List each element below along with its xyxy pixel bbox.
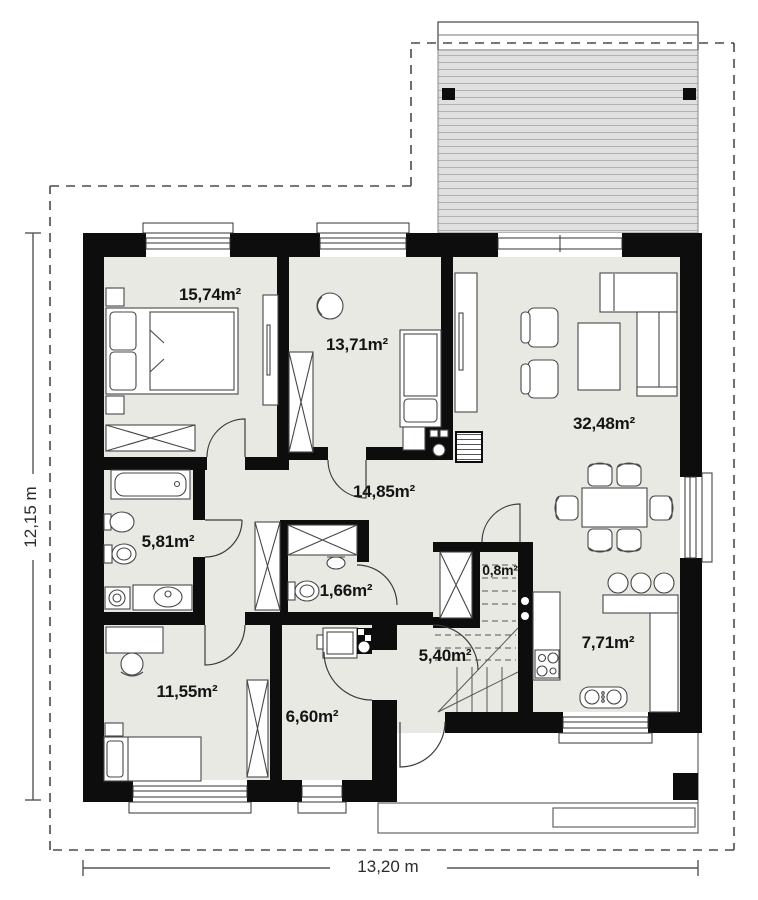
floor-plan: 15,74m² 13,71m² 32,48m² 14,85m² 5,81m² 1… [0, 0, 758, 900]
area-label-kitchen: 7,71m² [582, 633, 635, 653]
nightstand [105, 723, 123, 736]
tv-cabinet [455, 273, 477, 412]
terrace-post [683, 88, 696, 100]
radiator [456, 432, 482, 462]
toilet [288, 581, 319, 601]
bathtub [111, 470, 190, 499]
area-label-utility: 6,60m² [286, 707, 339, 727]
coffee-table [578, 323, 620, 390]
area-label-hallway: 14,85m² [353, 482, 415, 502]
dining-chair [617, 463, 641, 486]
single-bed [400, 330, 441, 427]
wardrobe-x [255, 522, 280, 610]
dining-chair [617, 529, 641, 552]
wardrobe-x [289, 352, 313, 452]
bidet [104, 512, 134, 532]
window-bedroom-large [143, 223, 233, 257]
stove [535, 650, 559, 678]
kitchen-sink [580, 687, 627, 708]
porch [378, 733, 698, 833]
armchair [521, 360, 558, 398]
dining-chair [588, 463, 612, 486]
dining-table [582, 488, 647, 527]
armchair [521, 308, 558, 347]
area-label-room-middle: 13,71m² [326, 335, 388, 355]
wardrobe-x [440, 552, 472, 618]
bar-stool [631, 573, 651, 593]
desk [106, 627, 163, 653]
window-living-right [680, 473, 712, 562]
terrace [438, 22, 698, 233]
dining-chair [555, 496, 578, 520]
cabinet [403, 427, 425, 450]
window-bedroom-small [129, 780, 251, 813]
desk-chair [121, 653, 143, 676]
area-label-wc: 1,66m² [320, 581, 373, 601]
washer-dryer [317, 628, 357, 658]
bar-counter [603, 595, 678, 613]
area-label-living-room: 32,48m² [573, 414, 635, 434]
door-pivot-dot [521, 612, 529, 620]
kitchen-counter [650, 613, 678, 712]
door-pivot-dot [521, 597, 529, 605]
window-room-middle [317, 223, 409, 257]
corner-basin [327, 557, 345, 569]
dining-chair [650, 496, 673, 520]
nightstand [106, 396, 124, 414]
dimension-height-label: 12,15 m [21, 486, 41, 547]
bar-stool [654, 573, 674, 593]
washbasin [133, 585, 192, 610]
terrace-post [442, 88, 455, 100]
area-label-bedroom-small: 11,55m² [157, 682, 218, 702]
dresser [106, 425, 195, 451]
wardrobe-slim [263, 295, 278, 405]
single-bed [104, 737, 201, 781]
wardrobe-x [247, 680, 268, 777]
area-label-closet: 0,8m² [482, 562, 518, 578]
washing-machine [105, 587, 130, 609]
armchair-round [317, 293, 343, 319]
dining-chair [588, 529, 612, 552]
bar-stool [608, 573, 628, 593]
floor-plan-drawing [0, 0, 758, 900]
wardrobe-x [288, 525, 357, 555]
boiler-unit [357, 628, 372, 654]
toilet [104, 544, 136, 564]
porch-pillar [673, 773, 698, 800]
double-bed [106, 308, 238, 394]
area-label-bathroom: 5,81m² [142, 532, 195, 552]
window-kitchen [559, 712, 652, 743]
nightstand [106, 288, 124, 306]
window-utility [298, 780, 346, 813]
terrace-door [498, 233, 622, 257]
area-label-bedroom-large: 15,74m² [179, 285, 241, 305]
dimension-width-label: 13,20 m [357, 857, 418, 877]
area-label-entry-hall: 5,40m² [419, 646, 472, 666]
